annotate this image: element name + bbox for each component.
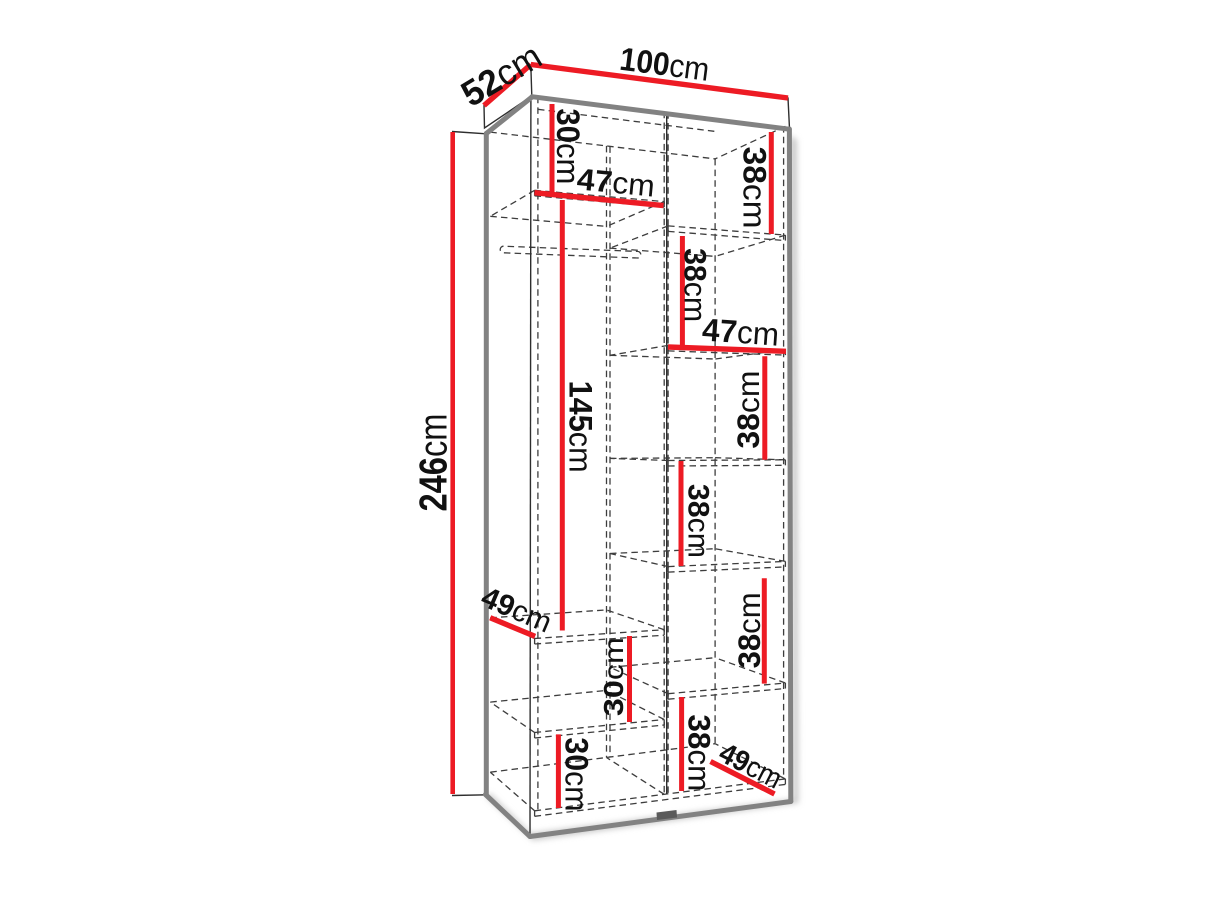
svg-text:38cm: 38cm — [731, 592, 767, 668]
svg-text:30cm: 30cm — [558, 737, 594, 811]
svg-text:38cm: 38cm — [682, 484, 715, 558]
svg-text:30cm: 30cm — [598, 637, 629, 716]
svg-text:145cm: 145cm — [562, 381, 598, 473]
svg-text:38cm: 38cm — [682, 714, 717, 791]
svg-text:38cm: 38cm — [737, 147, 773, 229]
svg-text:47cm: 47cm — [701, 311, 780, 352]
svg-text:38cm: 38cm — [730, 371, 766, 449]
svg-text:246cm: 246cm — [413, 414, 456, 512]
